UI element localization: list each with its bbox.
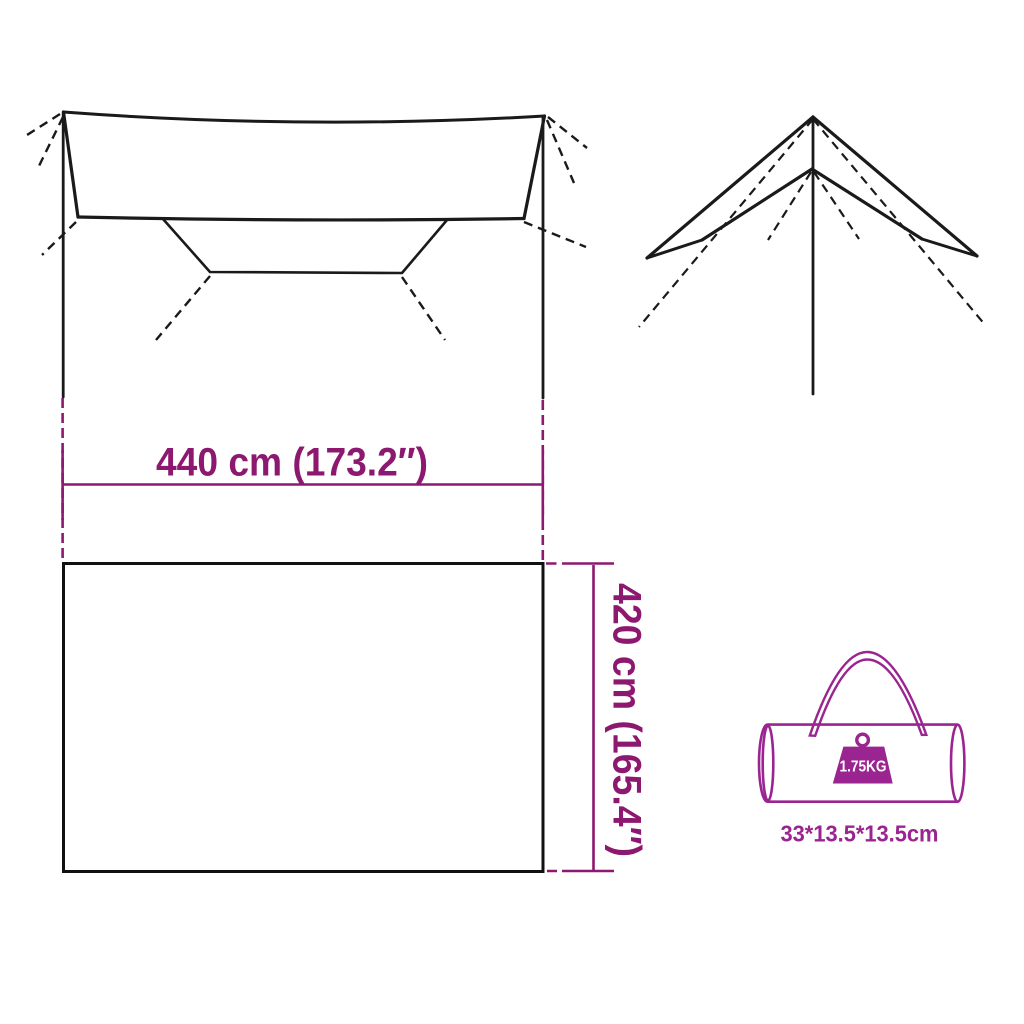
- svg-text:1.75KG: 1.75KG: [840, 759, 887, 776]
- svg-text:420 cm (165.4″): 420 cm (165.4″): [605, 583, 649, 857]
- svg-text:33*13.5*13.5cm: 33*13.5*13.5cm: [781, 821, 939, 847]
- svg-text:440 cm (173.2″): 440 cm (173.2″): [156, 441, 428, 485]
